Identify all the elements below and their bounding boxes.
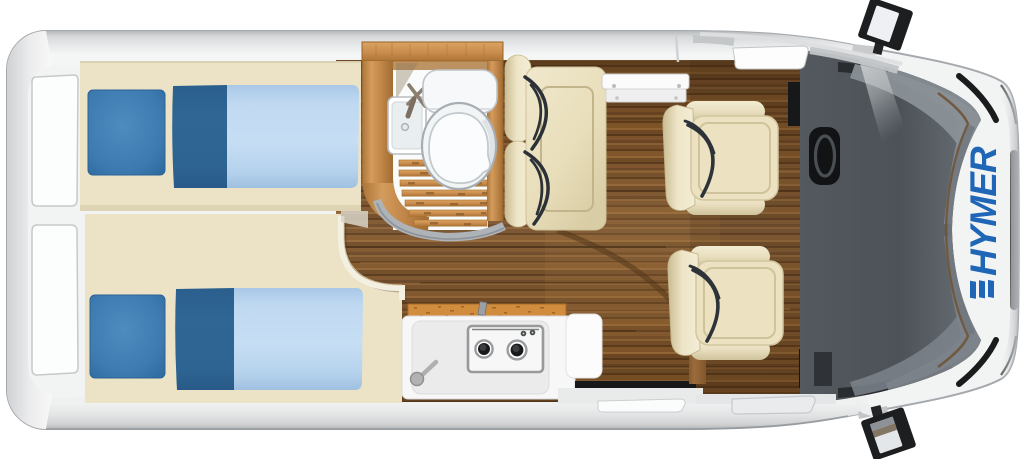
svg-text:HYMER: HYMER (963, 146, 1004, 276)
